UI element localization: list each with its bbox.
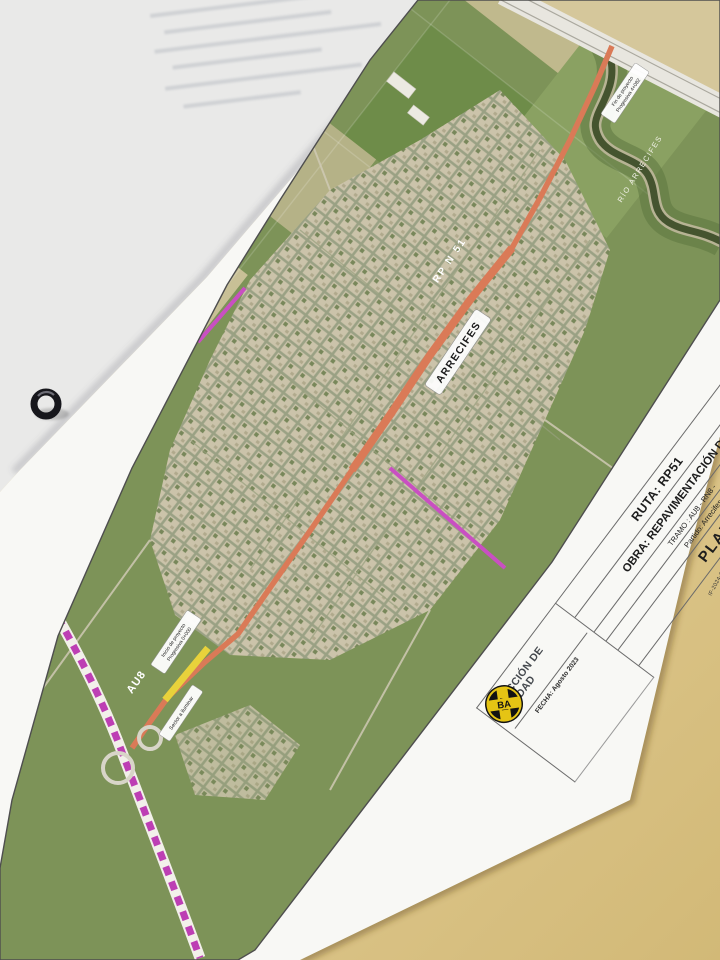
logo-letters-ba: BA xyxy=(497,699,512,712)
photo-of-plan-sheet: RÍO ARRECIFES RP N 51 AU8 ARRECIFES Fin … xyxy=(0,0,720,960)
plan-sheet-graphic: RÍO ARRECIFES RP N 51 AU8 ARRECIFES Fin … xyxy=(0,0,720,960)
